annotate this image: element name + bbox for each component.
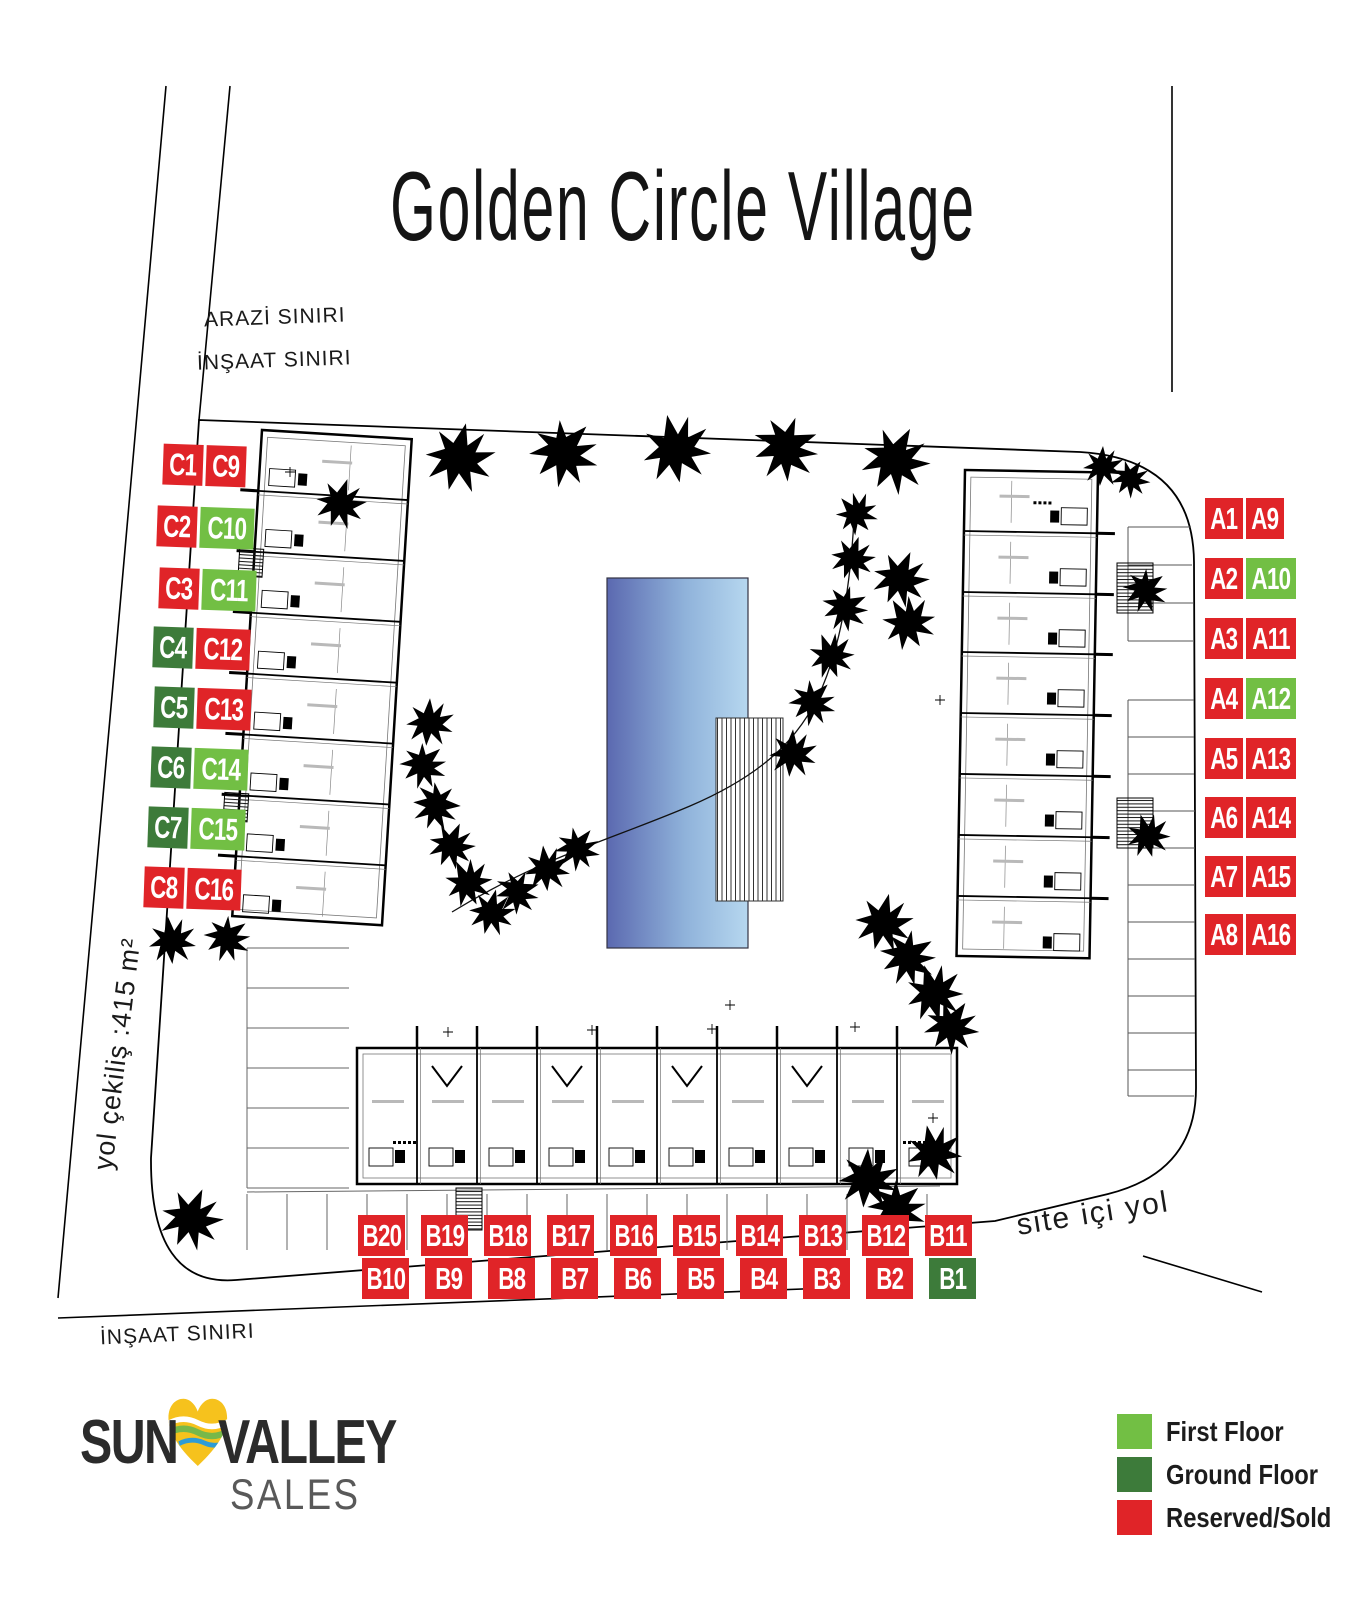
- a-block-row-2: A2A10: [1205, 558, 1296, 599]
- unit-badge-b1[interactable]: B1: [929, 1258, 976, 1299]
- a-block-row-7: A7A15: [1205, 856, 1296, 897]
- legend-item-reserved-sold: Reserved/Sold: [1117, 1500, 1361, 1535]
- unit-badge-label: B3: [813, 1261, 840, 1297]
- unit-badge-label: B8: [498, 1261, 525, 1297]
- unit-badge-label: C15: [198, 811, 238, 848]
- unit-badge-label: C4: [159, 629, 187, 666]
- unit-badge-c2[interactable]: C2: [156, 505, 197, 547]
- unit-badge-a14[interactable]: A14: [1246, 797, 1296, 838]
- unit-badge-label: A16: [1252, 917, 1291, 953]
- legend-item-first-floor: First Floor: [1117, 1414, 1361, 1449]
- unit-badge-b8[interactable]: B8: [488, 1258, 535, 1299]
- unit-badge-label: A1: [1210, 501, 1237, 537]
- unit-badge-b11[interactable]: B11: [925, 1215, 972, 1256]
- unit-badge-label: A11: [1252, 621, 1290, 657]
- c-block-row-8: C8C16: [143, 866, 241, 910]
- legend: First FloorGround FloorReserved/Sold: [1117, 1414, 1361, 1543]
- unit-badge-label: B6: [624, 1261, 651, 1297]
- unit-badge-label: B19: [425, 1218, 464, 1254]
- unit-badge-a4[interactable]: A4: [1205, 678, 1243, 719]
- unit-badge-b10[interactable]: B10: [362, 1258, 409, 1299]
- first-floor-swatch: [1117, 1414, 1152, 1449]
- unit-badge-b20[interactable]: B20: [358, 1215, 405, 1256]
- unit-badge-label: B9: [435, 1261, 462, 1297]
- unit-badge-label: A9: [1251, 501, 1278, 537]
- unit-badge-b7[interactable]: B7: [551, 1258, 598, 1299]
- unit-badge-label: C6: [157, 749, 185, 786]
- unit-badge-b16[interactable]: B16: [610, 1215, 657, 1256]
- unit-badge-label: A10: [1252, 561, 1291, 597]
- unit-badge-a16[interactable]: A16: [1246, 914, 1296, 955]
- unit-badge-b2[interactable]: B2: [866, 1258, 913, 1299]
- unit-badge-label: C16: [194, 871, 234, 908]
- legend-label: Reserved/Sold: [1166, 1502, 1331, 1534]
- reserved-sold-swatch: [1117, 1500, 1152, 1535]
- unit-badge-a12[interactable]: A12: [1246, 678, 1296, 719]
- unit-badge-label: B14: [740, 1218, 779, 1254]
- unit-badge-c8[interactable]: C8: [143, 866, 184, 908]
- logo-wordmark: SUN VALLEY: [80, 1405, 396, 1479]
- unit-badge-label: C10: [207, 510, 247, 547]
- a-block-row-3: A3A11: [1205, 618, 1296, 659]
- unit-badge-b4[interactable]: B4: [740, 1258, 787, 1299]
- unit-badge-b14[interactable]: B14: [736, 1215, 783, 1256]
- unit-badge-a9[interactable]: A9: [1246, 498, 1284, 539]
- unit-badge-label: C3: [165, 570, 193, 607]
- unit-badge-label: C2: [163, 508, 191, 545]
- unit-badge-label: B12: [866, 1218, 905, 1254]
- unit-badge-label: A15: [1252, 859, 1291, 895]
- unit-badge-label: C14: [201, 751, 241, 788]
- unit-badge-c13[interactable]: C13: [196, 688, 251, 731]
- unit-badges-layer: C1C9C2C10C3C11C4C12C5C13C6C14C7C15C8C16A…: [0, 0, 1366, 1600]
- logo-sun-text: SUN: [80, 1407, 177, 1478]
- unit-badge-c7[interactable]: C7: [147, 806, 188, 848]
- unit-badge-a5[interactable]: A5: [1205, 738, 1243, 779]
- unit-badge-a15[interactable]: A15: [1246, 856, 1296, 897]
- unit-badge-c5[interactable]: C5: [153, 686, 194, 728]
- unit-badge-b17[interactable]: B17: [547, 1215, 594, 1256]
- unit-badge-b13[interactable]: B13: [799, 1215, 846, 1256]
- unit-badge-label: C12: [203, 631, 243, 668]
- unit-badge-label: B11: [930, 1218, 968, 1254]
- unit-badge-a3[interactable]: A3: [1205, 618, 1243, 659]
- unit-badge-label: B17: [551, 1218, 590, 1254]
- unit-badge-label: B5: [687, 1261, 714, 1297]
- unit-badge-c1[interactable]: C1: [162, 444, 203, 486]
- unit-badge-a11[interactable]: A11: [1246, 618, 1296, 659]
- c-block-row-4: C4C12: [152, 626, 250, 670]
- unit-badge-label: C1: [169, 446, 197, 483]
- unit-badge-label: B20: [362, 1218, 401, 1254]
- unit-badge-label: B18: [488, 1218, 527, 1254]
- unit-badge-c15[interactable]: C15: [190, 808, 245, 851]
- c-block-row-7: C7C15: [147, 806, 245, 850]
- logo-sales-text: SALES: [230, 1471, 447, 1520]
- c-block-row-1: C1C9: [162, 444, 246, 488]
- unit-badge-a2[interactable]: A2: [1205, 558, 1243, 599]
- unit-badge-c6[interactable]: C6: [150, 746, 191, 788]
- unit-badge-label: A13: [1252, 741, 1291, 777]
- unit-badge-label: B1: [939, 1261, 966, 1297]
- unit-badge-c11[interactable]: C11: [201, 569, 256, 612]
- a-block-row-4: A4A12: [1205, 678, 1296, 719]
- unit-badge-label: B15: [677, 1218, 716, 1254]
- a-block-row-6: A6A14: [1205, 797, 1296, 838]
- a-block-row-8: A8A16: [1205, 914, 1296, 955]
- site-plan-canvas: Golden Circle Village ARAZİ SINIRI İNŞAA…: [0, 0, 1366, 1600]
- unit-badge-label: A6: [1210, 800, 1237, 836]
- legend-label: Ground Floor: [1166, 1459, 1318, 1491]
- unit-badge-label: A4: [1210, 681, 1237, 717]
- unit-badge-label: C11: [210, 572, 249, 609]
- unit-badge-label: B16: [614, 1218, 653, 1254]
- unit-badge-label: A2: [1210, 561, 1237, 597]
- unit-badge-c9[interactable]: C9: [205, 445, 246, 487]
- unit-badge-a8[interactable]: A8: [1205, 914, 1243, 955]
- c-block-row-3: C3C11: [158, 567, 256, 611]
- unit-badge-label: A12: [1252, 681, 1291, 717]
- unit-badge-label: C9: [212, 448, 240, 485]
- ground-floor-swatch: [1117, 1457, 1152, 1492]
- unit-badge-b5[interactable]: B5: [677, 1258, 724, 1299]
- unit-badge-a10[interactable]: A10: [1246, 558, 1296, 599]
- unit-badge-a6[interactable]: A6: [1205, 797, 1243, 838]
- unit-badge-label: A7: [1210, 859, 1237, 895]
- unit-badge-c10[interactable]: C10: [199, 507, 254, 550]
- unit-badge-label: C13: [204, 691, 244, 728]
- unit-badge-label: C7: [154, 809, 182, 846]
- unit-badge-label: A8: [1210, 917, 1237, 953]
- unit-badge-label: B2: [876, 1261, 903, 1297]
- unit-badge-label: B4: [750, 1261, 777, 1297]
- unit-badge-label: B10: [366, 1261, 405, 1297]
- c-block-row-2: C2C10: [156, 505, 254, 549]
- c-block-row-5: C5C13: [153, 686, 251, 730]
- unit-badge-b3[interactable]: B3: [803, 1258, 850, 1299]
- unit-badge-c3[interactable]: C3: [158, 567, 199, 609]
- c-block-row-6: C6C14: [150, 746, 248, 790]
- unit-badge-label: C8: [150, 869, 178, 906]
- unit-badge-b12[interactable]: B12: [862, 1215, 909, 1256]
- unit-badge-a7[interactable]: A7: [1205, 856, 1243, 897]
- unit-badge-b6[interactable]: B6: [614, 1258, 661, 1299]
- unit-badge-c14[interactable]: C14: [193, 748, 248, 791]
- unit-badge-label: B13: [803, 1218, 842, 1254]
- a-block-row-1: A1A9: [1205, 498, 1284, 539]
- unit-badge-c4[interactable]: C4: [152, 626, 193, 668]
- unit-badge-b19[interactable]: B19: [421, 1215, 468, 1256]
- unit-badge-label: B7: [561, 1261, 588, 1297]
- unit-badge-label: A14: [1252, 800, 1291, 836]
- unit-badge-label: A5: [1210, 741, 1237, 777]
- a-block-row-5: A5A13: [1205, 738, 1296, 779]
- unit-badge-a1[interactable]: A1: [1205, 498, 1243, 539]
- unit-badge-c12[interactable]: C12: [195, 628, 250, 671]
- legend-item-ground-floor: Ground Floor: [1117, 1457, 1361, 1492]
- unit-badge-a13[interactable]: A13: [1246, 738, 1296, 779]
- legend-label: First Floor: [1166, 1416, 1284, 1448]
- unit-badge-label: A3: [1210, 621, 1237, 657]
- sun-valley-sales-logo: SUN VALLEY SALES: [80, 1405, 485, 1520]
- unit-badge-b15[interactable]: B15: [673, 1215, 720, 1256]
- unit-badge-b9[interactable]: B9: [425, 1258, 472, 1299]
- logo-valley-text: VALLEY: [218, 1407, 396, 1478]
- unit-badge-label: C5: [160, 689, 188, 726]
- unit-badge-b18[interactable]: B18: [484, 1215, 531, 1256]
- unit-badge-c16[interactable]: C16: [186, 868, 241, 911]
